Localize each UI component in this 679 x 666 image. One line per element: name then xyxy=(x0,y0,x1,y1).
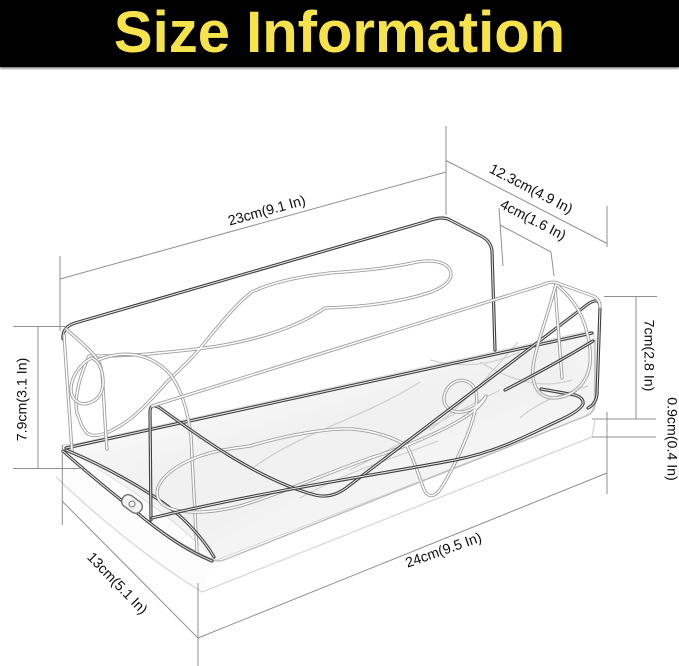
svg-text:7.9cm(3.1 In): 7.9cm(3.1 In) xyxy=(15,358,31,442)
svg-text:0.9cm(0.4 In): 0.9cm(0.4 In) xyxy=(664,397,679,481)
svg-text:13cm(5.1 In): 13cm(5.1 In) xyxy=(83,550,150,618)
svg-text:7cm(2.8 In): 7cm(2.8 In) xyxy=(641,320,657,392)
svg-text:23cm(9.1 In): 23cm(9.1 In) xyxy=(226,193,307,230)
